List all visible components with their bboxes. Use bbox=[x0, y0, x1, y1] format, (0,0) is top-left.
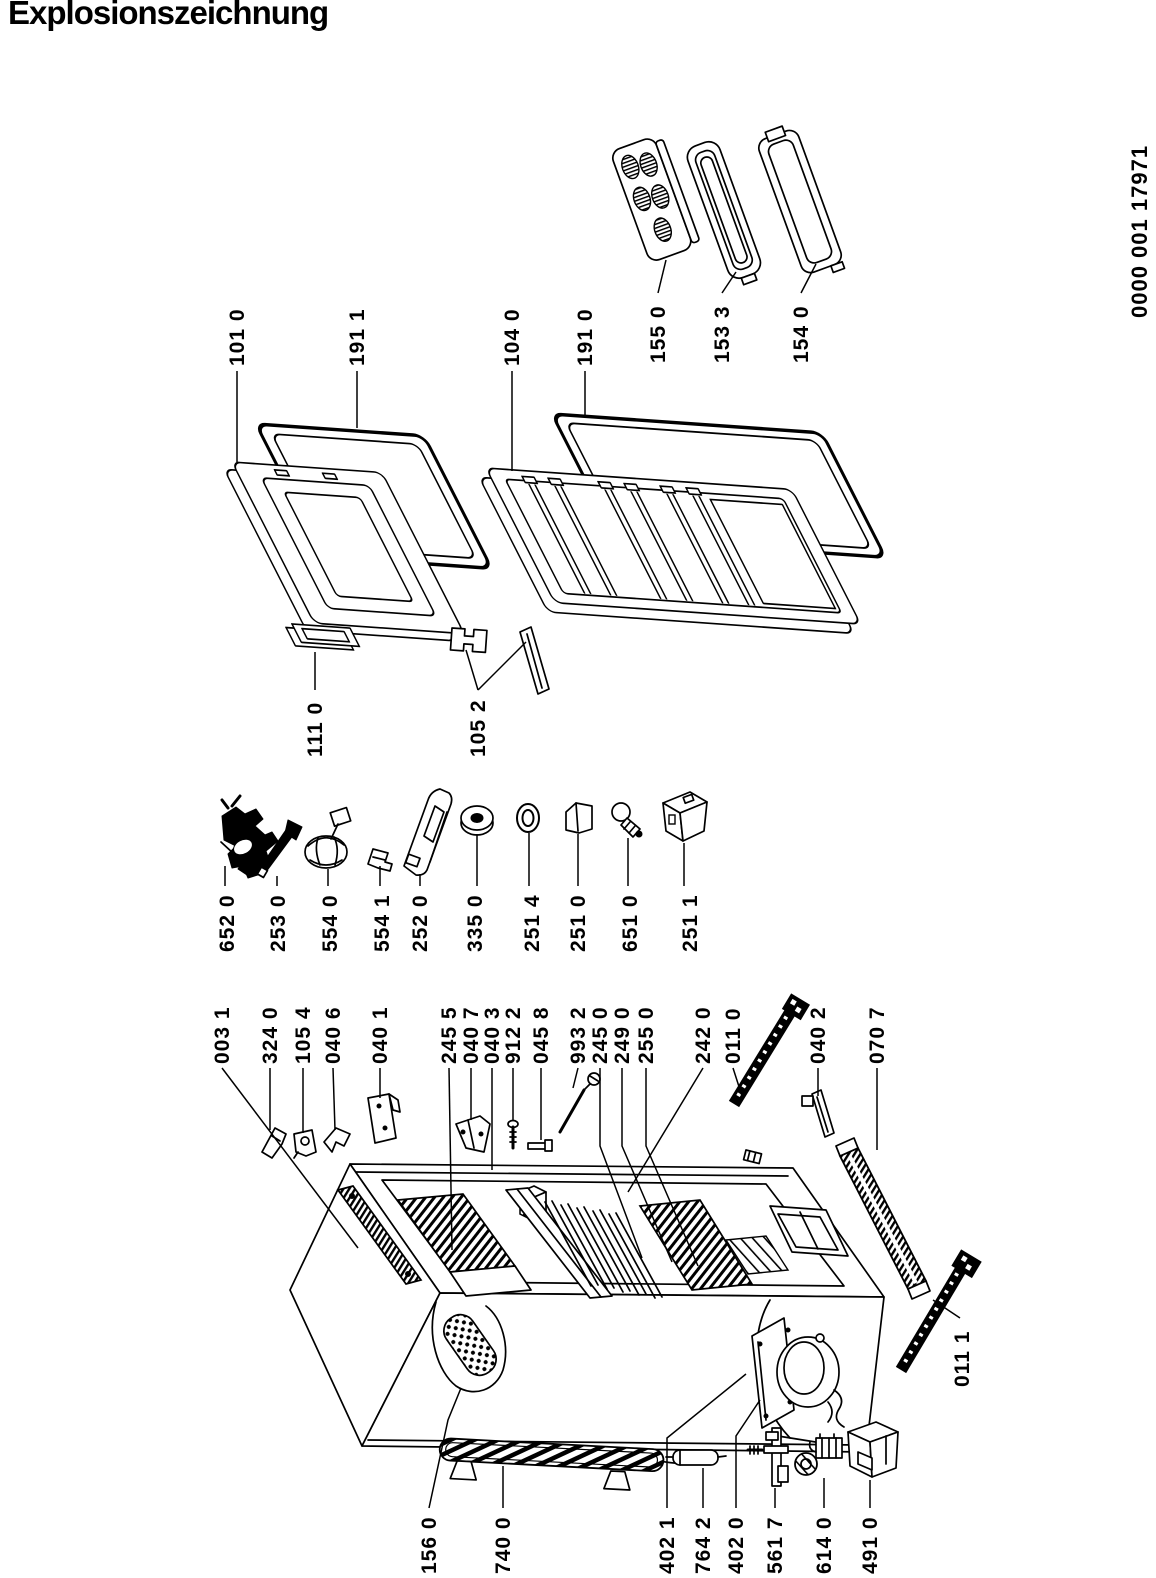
door-handle-154 bbox=[754, 122, 846, 282]
leader-line-153-3 bbox=[722, 272, 736, 293]
drier-filter bbox=[666, 1450, 726, 1465]
corner-clip bbox=[744, 1150, 762, 1164]
switch-box bbox=[663, 792, 707, 841]
part-label-191-1: 191 1 bbox=[346, 308, 369, 366]
part-label-651-0: 651 0 bbox=[619, 894, 642, 952]
main-door bbox=[474, 467, 866, 634]
part-label-652-0: 652 0 bbox=[216, 894, 239, 952]
part-label-402-1: 402 1 bbox=[656, 1516, 679, 1574]
part-label-104-0: 104 0 bbox=[501, 308, 524, 366]
part-label-251-0: 251 0 bbox=[567, 894, 590, 952]
part-label-105-4: 105 4 bbox=[292, 1006, 315, 1064]
part-label-252-0: 252 0 bbox=[409, 894, 432, 952]
part-label-153-3: 153 3 bbox=[711, 305, 734, 363]
part-label-491-0: 491 0 bbox=[859, 1516, 882, 1574]
cover-plate-251 bbox=[566, 803, 592, 833]
part-label-040-6: 040 6 bbox=[322, 1006, 345, 1064]
part-label-040-7: 040 7 bbox=[460, 1006, 483, 1064]
part-label-561-7: 561 7 bbox=[764, 1516, 787, 1574]
part-label-155-0: 155 0 bbox=[647, 305, 670, 363]
part-label-993-2: 993 2 bbox=[567, 1006, 590, 1064]
part-label-040-3: 040 3 bbox=[481, 1006, 504, 1064]
part-label-105-2: 105 2 bbox=[467, 699, 490, 757]
part-label-245-5: 245 5 bbox=[438, 1006, 461, 1064]
part-label-335-0: 335 0 bbox=[464, 894, 487, 952]
part-label-912-2: 912 2 bbox=[502, 1006, 525, 1064]
part-label-040-1: 040 1 bbox=[369, 1006, 392, 1064]
part-label-253-0: 253 0 bbox=[267, 894, 290, 952]
part-label-191-0: 191 0 bbox=[574, 308, 597, 366]
part-label-070-7: 070 7 bbox=[866, 1006, 889, 1064]
light-bulb bbox=[612, 803, 642, 837]
part-label-111-0: 111 0 bbox=[304, 702, 327, 757]
hinge-cover-plate bbox=[284, 623, 361, 650]
grommet-disc bbox=[461, 806, 493, 835]
leader-line-993-2 bbox=[573, 1068, 578, 1088]
exploded-drawing-page: Explosionszeichnung bbox=[0, 0, 1156, 1578]
part-label-156-0: 156 0 bbox=[418, 1516, 441, 1574]
freezer-door bbox=[220, 461, 468, 642]
doc-number: 0000 001 17971 bbox=[1127, 145, 1152, 318]
mounting-parts bbox=[262, 1073, 600, 1158]
part-label-242-0: 242 0 bbox=[692, 1006, 715, 1064]
part-label-255-0: 255 0 bbox=[635, 1006, 658, 1064]
part-label-614-0: 614 0 bbox=[813, 1516, 836, 1574]
door-handle-153 bbox=[684, 138, 766, 288]
part-label-764-2: 764 2 bbox=[692, 1516, 715, 1574]
lamp-housing bbox=[404, 789, 452, 875]
exploded-view-diagram: 101 0191 1104 0191 0155 0153 3154 0111 0… bbox=[0, 0, 1156, 1578]
part-label-245-0: 245 0 bbox=[589, 1006, 612, 1064]
leader-line-003-1 bbox=[222, 1068, 358, 1248]
part-label-554-1: 554 1 bbox=[371, 894, 394, 952]
part-label-101-0: 101 0 bbox=[226, 308, 249, 366]
part-label-045-8: 045 8 bbox=[530, 1006, 553, 1064]
rack-strip-upper bbox=[734, 993, 810, 1104]
part-label-040-2: 040 2 bbox=[807, 1006, 830, 1064]
clip-pair bbox=[450, 627, 549, 694]
part-label-554-0: 554 0 bbox=[319, 894, 342, 952]
leader-line-105-2 bbox=[466, 650, 478, 690]
leader-line-155-0 bbox=[658, 260, 666, 293]
clip-040-2 bbox=[802, 1090, 834, 1137]
part-label-011-0: 011 0 bbox=[722, 1008, 745, 1064]
part-label-402-0: 402 0 bbox=[725, 1516, 748, 1574]
leader-line-040-6 bbox=[333, 1068, 335, 1130]
part-label-251-1: 251 1 bbox=[679, 894, 702, 952]
thermostat-knob bbox=[305, 808, 351, 868]
part-label-324-0: 324 0 bbox=[259, 1006, 282, 1064]
terminal-cover bbox=[848, 1422, 898, 1477]
part-label-251-4: 251 4 bbox=[521, 894, 544, 952]
part-label-740-0: 740 0 bbox=[492, 1516, 515, 1574]
part-label-154-0: 154 0 bbox=[790, 305, 813, 363]
part-label-011-1: 011 1 bbox=[951, 1331, 974, 1387]
part-label-003-1: 003 1 bbox=[211, 1006, 234, 1064]
ring-seal bbox=[517, 804, 539, 832]
part-label-249-0: 249 0 bbox=[611, 1006, 634, 1064]
